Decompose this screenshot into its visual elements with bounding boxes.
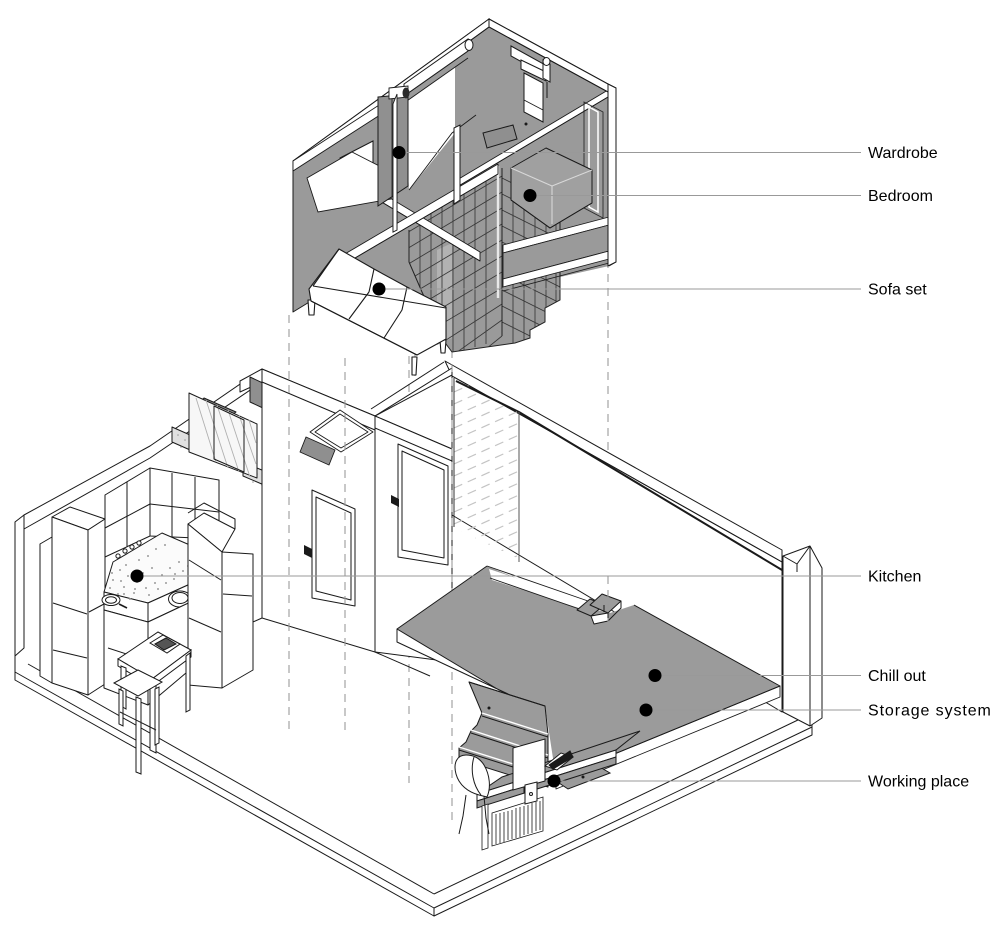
- svg-text:Sofa set: Sofa set: [868, 282, 927, 299]
- svg-text:Chill out: Chill out: [868, 668, 926, 685]
- svg-text:Bedroom: Bedroom: [868, 188, 933, 205]
- svg-text:Kitchen: Kitchen: [868, 569, 921, 586]
- svg-text:Storage system: Storage system: [868, 703, 990, 720]
- svg-text:Wardrobe: Wardrobe: [868, 145, 938, 162]
- svg-text:Working place: Working place: [868, 774, 969, 791]
